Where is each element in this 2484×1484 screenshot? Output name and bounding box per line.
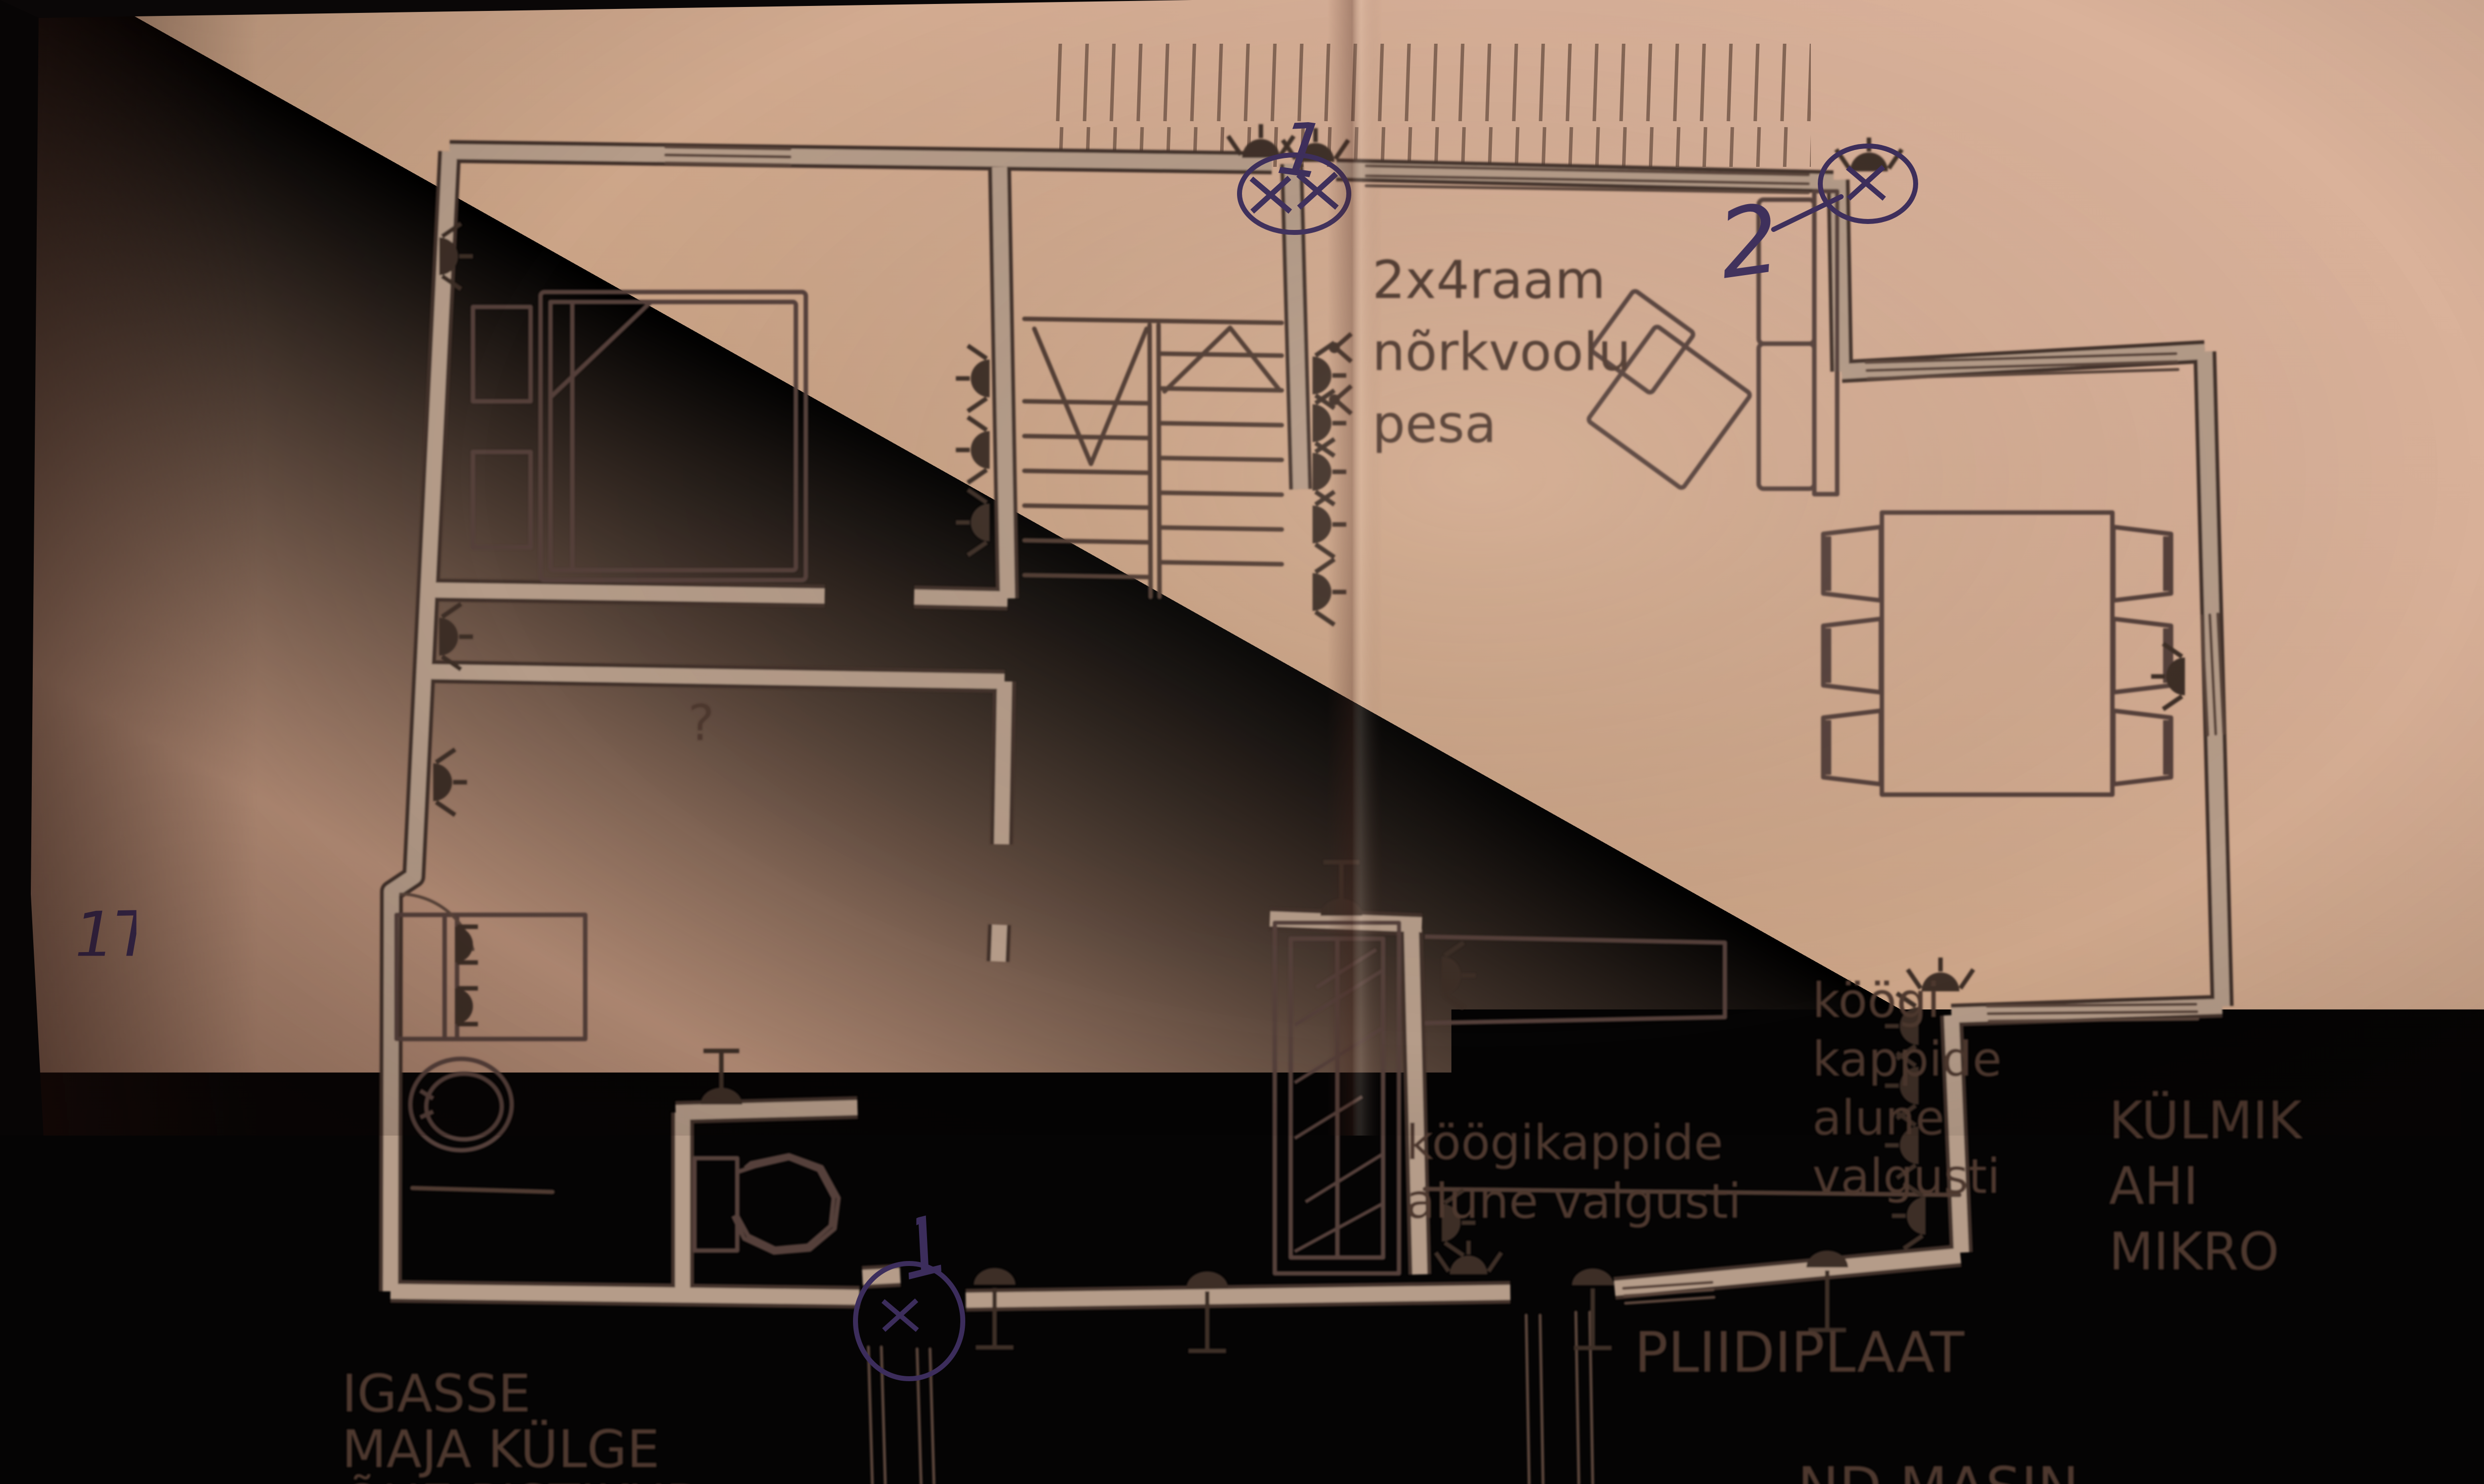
vignette xyxy=(0,0,2484,1484)
floorplan-photo: 2x4raam nõrkvoolu pesa ? köögikappide al… xyxy=(0,0,2484,1484)
